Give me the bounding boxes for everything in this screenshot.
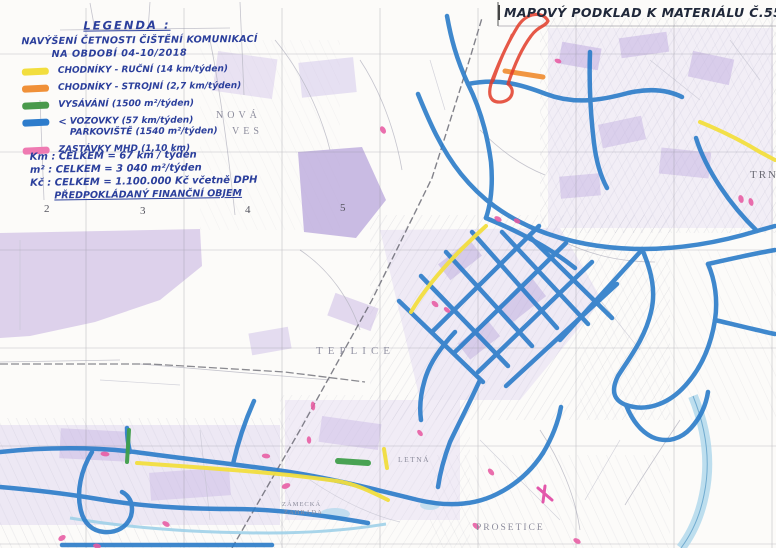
grid-number-5: 5	[340, 202, 346, 214]
place-label-letna: LETNÁ	[398, 455, 430, 464]
legend-item-label-2: PARKOVIŠTĚ (1540 m²/týden)	[70, 126, 218, 139]
place-label-nova: NOVÁ	[216, 110, 261, 121]
legend-item-label: CHODNÍKY - RUČNÍ (14 km/týden)	[58, 64, 228, 77]
scanned-map-sheet: MAPOVÝ PODKLAD K MATERIÁLU Č.55 LEGENDA …	[0, 0, 776, 548]
place-label-trn: TRN	[750, 169, 776, 181]
legend-item-label: VYSÁVÁNÍ (1500 m²/týden)	[58, 98, 194, 110]
orange-swatch	[22, 85, 49, 93]
legend-heading: LEGENDA :	[83, 17, 269, 33]
legend-subheading-2: NA OBDOBÍ 04-10/2018	[52, 47, 270, 60]
grid-number-3: 3	[140, 205, 146, 217]
total-km: Km : CELKEM = 67 km / týden	[30, 148, 290, 163]
red-annotation-loop	[490, 14, 548, 102]
totals-block: Km : CELKEM = 67 km / týden m² : CELKEM …	[30, 146, 291, 202]
place-label-teplice: TEPLICE	[316, 345, 395, 357]
grid-number-2: 2	[44, 203, 50, 215]
grid-number-4: 4	[245, 204, 251, 216]
green-swatch	[22, 102, 49, 110]
legend-item-chodniky-rucni: CHODNÍKY - RUČNÍ (14 km/týden)	[22, 64, 270, 78]
place-label-zahrada: ZAHRADA	[284, 509, 323, 516]
legend-item-label: CHODNÍKY - STROJNÍ (2,7 km/týden)	[58, 81, 241, 94]
yellow-swatch	[22, 68, 49, 76]
legend-item-chodniky-strojni: CHODNÍKY - STROJNÍ (2,7 km/týden)	[22, 81, 270, 95]
total-kc: Kč : CELKEM = 1.100.000 Kč včetně DPH	[30, 174, 290, 189]
blue-swatch	[22, 119, 49, 127]
place-label-zamecka: ZÁMECKÁ	[282, 501, 321, 508]
arrow-mark: <	[58, 117, 67, 128]
place-label-ves: VES	[232, 126, 263, 137]
total-m2: m² : CELKEM = 3 040 m²/týden	[30, 161, 290, 176]
page-title: MAPOVÝ PODKLAD K MATERIÁLU Č.55	[498, 5, 776, 20]
legend-subheading-1: NAVÝŠENÍ ČETNOSTI ČIŠTĚNÍ KOMUNIKACÍ	[21, 34, 269, 48]
place-label-prosetice: PROSETICE	[476, 523, 545, 533]
